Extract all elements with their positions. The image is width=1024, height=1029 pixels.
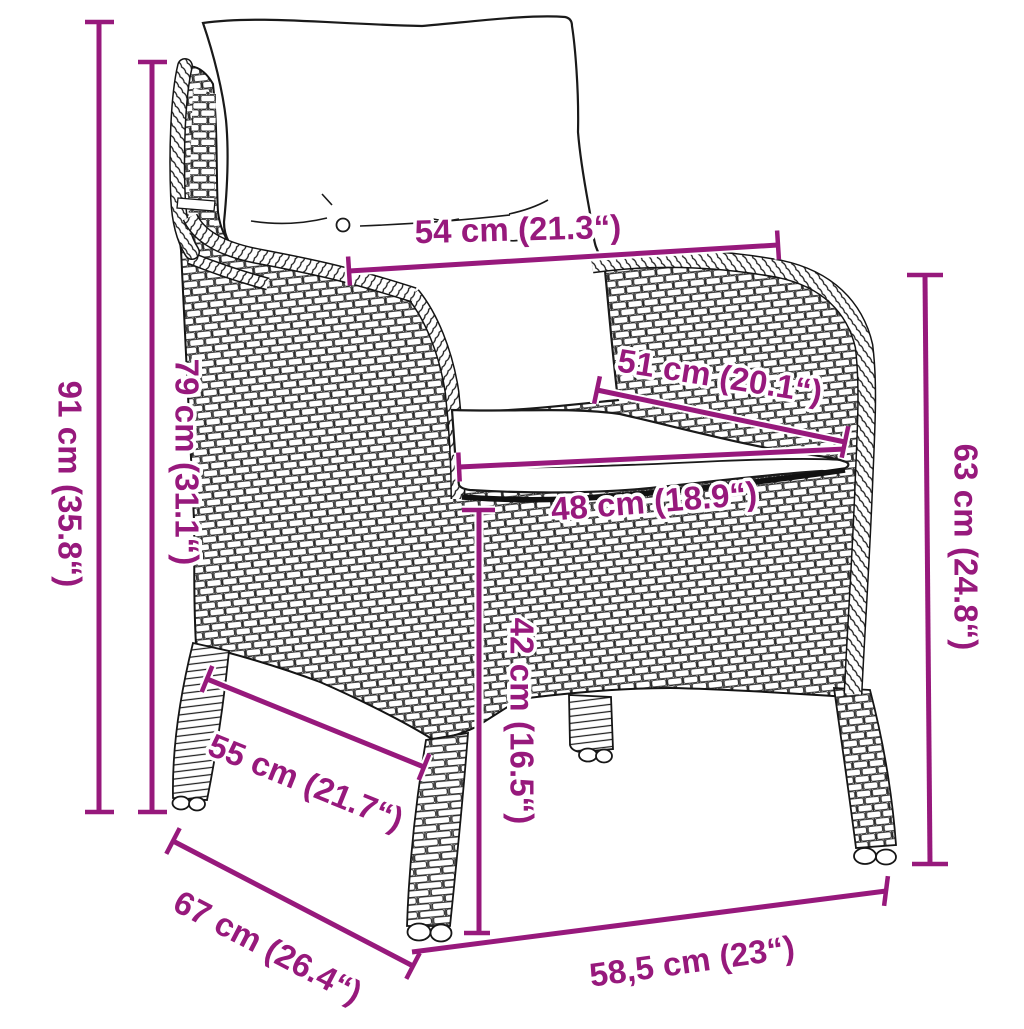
svg-text:91 cm (35.8“): 91 cm (35.8“) — [52, 381, 89, 588]
svg-text:54 cm (21.3“): 54 cm (21.3“) — [414, 208, 622, 250]
svg-text:42 cm (16.5“): 42 cm (16.5“) — [504, 618, 541, 825]
svg-text:79 cm (31.1“): 79 cm (31.1“) — [169, 359, 206, 566]
svg-text:63 cm (24.8“): 63 cm (24.8“) — [948, 444, 985, 651]
